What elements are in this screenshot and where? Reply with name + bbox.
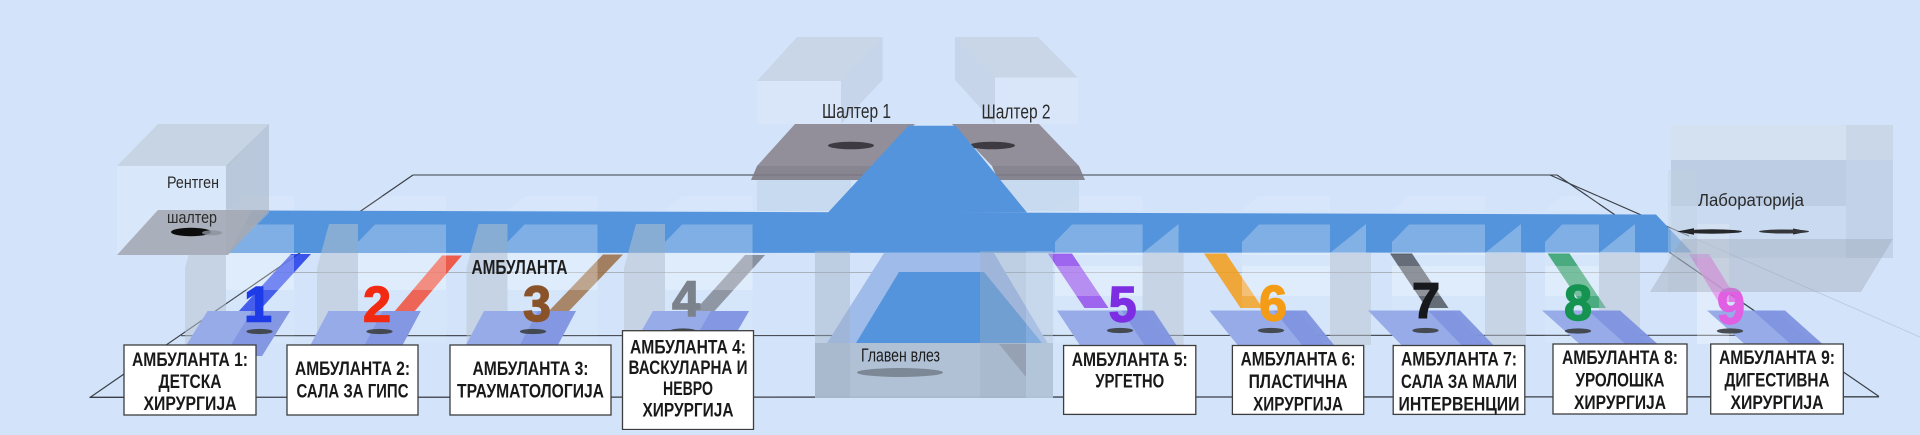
svg-text:ДЕТСКА: ДЕТСКА [159, 372, 222, 393]
svg-text:4: 4 [672, 271, 700, 327]
svg-text:8: 8 [1564, 275, 1592, 331]
svg-text:УРГЕТНО: УРГЕТНО [1095, 372, 1164, 393]
svg-text:ПЛАСТИЧНА: ПЛАСТИЧНА [1249, 372, 1348, 393]
svg-text:НЕВРО: НЕВРО [663, 379, 713, 400]
svg-text:шалтер: шалтер [167, 209, 217, 227]
svg-text:АМБУЛАНТА 4:: АМБУЛАНТА 4: [630, 337, 746, 358]
svg-text:Рентген: Рентген [167, 174, 219, 192]
svg-text:АМБУЛАНТА 3:: АМБУЛАНТА 3: [473, 359, 589, 380]
svg-text:3: 3 [523, 276, 551, 332]
svg-text:САЛА ЗА МАЛИ: САЛА ЗА МАЛИ [1401, 372, 1517, 393]
svg-text:АМБУЛАНТА 8:: АМБУЛАНТА 8: [1562, 348, 1678, 369]
svg-text:7: 7 [1412, 273, 1440, 329]
svg-text:ХИРУРГИЈА: ХИРУРГИЈА [643, 401, 734, 422]
svg-text:ТРАУМАТОЛОГИЈА: ТРАУМАТОЛОГИЈА [457, 382, 604, 403]
svg-text:1: 1 [244, 277, 272, 333]
svg-text:АМБУЛАНТА 6:: АМБУЛАНТА 6: [1241, 350, 1356, 371]
svg-text:Шалтер 1: Шалтер 1 [822, 101, 891, 123]
svg-text:Лабораторија: Лабораторија [1698, 190, 1804, 210]
svg-text:ХИРУРГИЈА: ХИРУРГИЈА [1253, 395, 1343, 416]
svg-text:ИНТЕРВЕНЦИИ: ИНТЕРВЕНЦИИ [1399, 395, 1520, 416]
svg-text:ДИГЕСТИВНА: ДИГЕСТИВНА [1725, 371, 1830, 392]
svg-text:ВАСКУЛАРНА И: ВАСКУЛАРНА И [629, 358, 748, 379]
svg-text:2: 2 [363, 277, 391, 333]
svg-text:САЛА ЗА ГИПС: САЛА ЗА ГИПС [297, 382, 409, 403]
svg-text:АМБУЛАНТА 2:: АМБУЛАНТА 2: [295, 359, 410, 380]
svg-text:АМБУЛАНТА 5:: АМБУЛАНТА 5: [1072, 350, 1188, 371]
svg-text:УРОЛОШКА: УРОЛОШКА [1576, 371, 1665, 392]
svg-text:АМБУЛАНТА 7:: АМБУЛАНТА 7: [1401, 350, 1517, 371]
svg-text:Шалтер 2: Шалтер 2 [982, 102, 1051, 124]
svg-text:АМБУЛАНТА 1:: АМБУЛАНТА 1: [132, 350, 248, 371]
svg-text:ХИРУРГИЈА: ХИРУРГИЈА [1574, 393, 1666, 414]
svg-text:5: 5 [1109, 277, 1137, 333]
svg-text:АМБУЛАНТА: АМБУЛАНТА [472, 256, 568, 279]
svg-text:6: 6 [1259, 276, 1287, 332]
svg-text:ХИРУРГИЈА: ХИРУРГИЈА [1731, 393, 1824, 414]
svg-text:ХИРУРГИЈА: ХИРУРГИЈА [144, 394, 237, 415]
svg-text:Главен влез: Главен влез [861, 346, 940, 366]
svg-text:АМБУЛАНТА 9:: АМБУЛАНТА 9: [1719, 348, 1835, 369]
